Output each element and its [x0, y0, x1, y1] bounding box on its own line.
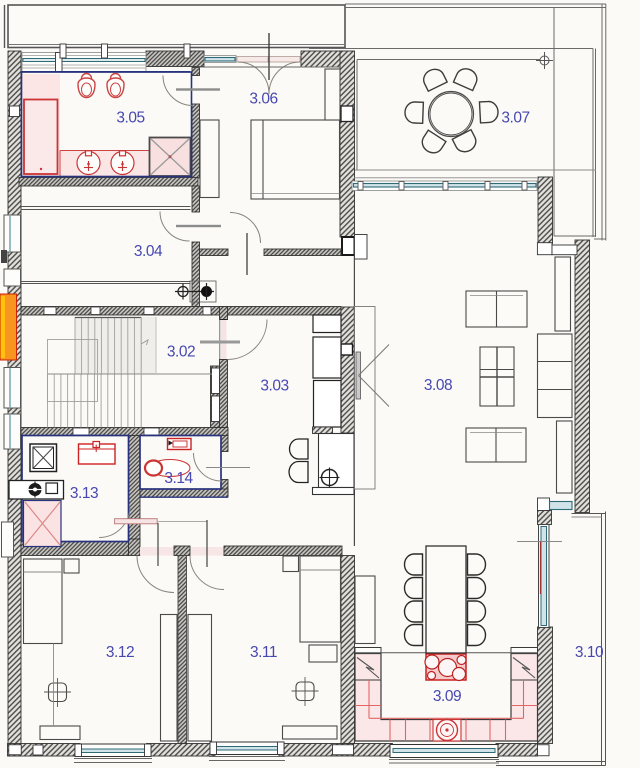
svg-text:3.05: 3.05 — [116, 110, 144, 127]
svg-text:3.13: 3.13 — [70, 485, 98, 502]
svg-text:3.10: 3.10 — [575, 644, 604, 661]
svg-text:3.07: 3.07 — [501, 110, 529, 127]
svg-text:3.06: 3.06 — [249, 91, 277, 108]
svg-text:3.09: 3.09 — [433, 688, 461, 705]
svg-text:3.12: 3.12 — [106, 644, 134, 661]
svg-text:3.02: 3.02 — [167, 344, 195, 361]
svg-text:3.03: 3.03 — [260, 378, 288, 395]
svg-text:3.11: 3.11 — [250, 644, 277, 661]
svg-text:3.04: 3.04 — [134, 243, 163, 260]
svg-text:3.14: 3.14 — [164, 470, 193, 487]
svg-text:3.08: 3.08 — [424, 377, 452, 394]
